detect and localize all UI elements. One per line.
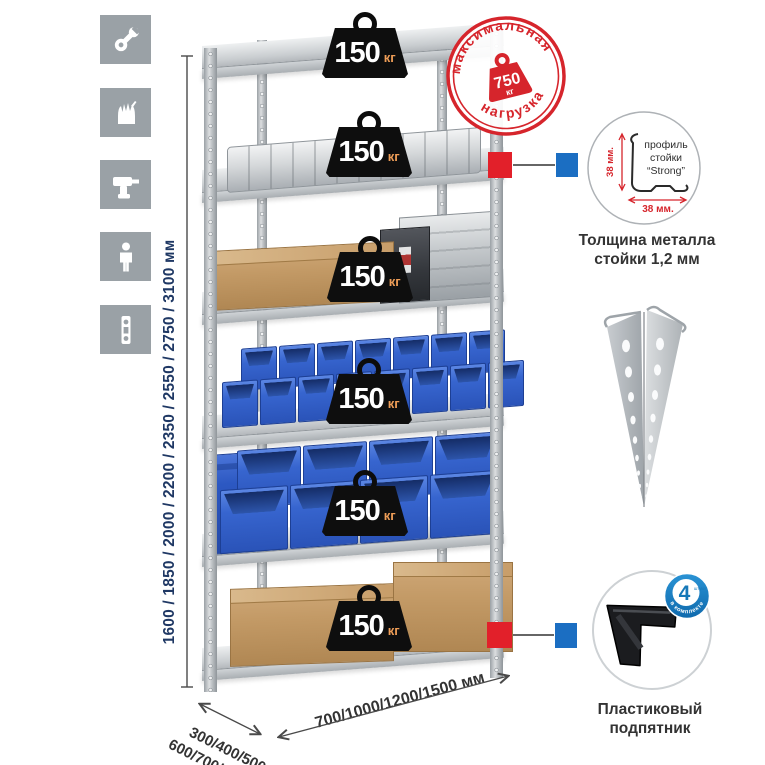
width-dimension-label: 700/1000/1200/1500 мм — [287, 662, 514, 740]
svg-text:38 мм.: 38 мм. — [605, 147, 616, 177]
svg-text:стойки: стойки — [650, 152, 682, 164]
person-icon — [100, 232, 151, 281]
shelf-load-badge: 150кг — [326, 585, 412, 651]
storage-bin — [430, 470, 498, 539]
callout-marker-blue — [555, 623, 577, 648]
post-profile-detail: 38 мм. 38 мм. профиль стойки “Strong” — [586, 110, 702, 226]
product-infographic: 1600 / 1850 / 2000 / 2200 / 2350 / 2550 … — [0, 0, 765, 765]
storage-bin — [260, 377, 296, 426]
foot-caption: Пластиковый подпятник — [575, 700, 725, 739]
shelf-load-badge: 150кг — [326, 111, 412, 177]
callout-marker-red — [487, 622, 512, 648]
storage-bin — [222, 379, 258, 428]
rack-post-front-left — [204, 48, 217, 692]
storage-bin — [450, 363, 486, 412]
svg-text:4: 4 — [679, 582, 691, 605]
svg-text:“Strong”: “Strong” — [647, 165, 685, 177]
shelf-load-badge: 150кг — [322, 470, 408, 536]
height-dimension-label: 1600 / 1850 / 2000 / 2200 / 2350 / 2550 … — [161, 240, 179, 645]
callout-marker-blue — [556, 153, 578, 177]
storage-bin — [412, 365, 448, 414]
shelf-load-badge: 150кг — [326, 358, 412, 424]
gloves-icon — [100, 88, 151, 137]
svg-text:штуки: штуки — [694, 586, 706, 591]
angle-post-image — [594, 302, 694, 532]
storage-bin — [220, 485, 288, 554]
svg-text:38 мм.: 38 мм. — [642, 204, 674, 215]
depth-dimension-label: 300/400/500 600/700/800 мм — [135, 702, 312, 765]
svg-text:профиль: профиль — [644, 139, 688, 151]
drill-icon — [100, 160, 151, 209]
shelf-load-badge: 150кг — [322, 12, 408, 78]
wrench-icon — [100, 15, 151, 64]
profile-caption: Толщина металла стойки 1,2 мм — [572, 231, 722, 270]
level-icon — [100, 305, 151, 354]
included-count-badge: 4 штуки в комплекте — [663, 572, 711, 620]
shelf-load-badge: 150кг — [327, 236, 413, 302]
callout-marker-red — [488, 152, 512, 178]
